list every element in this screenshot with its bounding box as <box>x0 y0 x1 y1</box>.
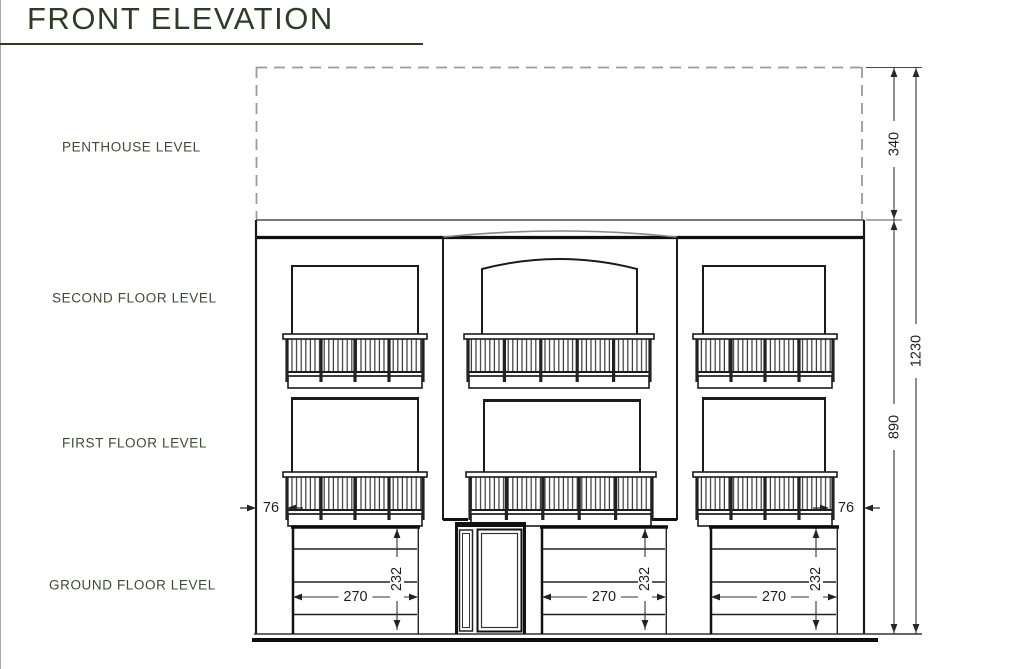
dim-main-height: 890 <box>887 415 903 439</box>
window-second-right <box>703 266 825 345</box>
balcony-railing <box>464 334 654 388</box>
penthouse-dashed-outline <box>256 67 864 219</box>
dim-side-offset-right: 76 <box>838 500 854 516</box>
dim-garage-height-center: 232 <box>637 567 653 591</box>
dim-total-height: 1230 <box>909 335 925 367</box>
window-second-center-arched <box>482 259 637 345</box>
dim-garage-height-right: 232 <box>808 567 824 591</box>
window-second-left <box>292 266 418 345</box>
balcony-railing <box>693 334 837 388</box>
balcony-railing <box>693 472 837 526</box>
dim-garage-height-left: 232 <box>389 567 405 591</box>
first-floor-windows <box>291 398 826 478</box>
window-first-center <box>484 400 640 478</box>
window-first-right <box>703 398 825 478</box>
dim-garage-width-right: 270 <box>762 589 786 605</box>
window-first-left <box>292 398 418 478</box>
dim-garage-width-left: 270 <box>343 589 367 605</box>
dim-penthouse-height: 340 <box>887 132 903 156</box>
elevation-drawing: 340 890 1230 270 270 270 232 232 232 76 … <box>0 0 1024 669</box>
entrance-door <box>455 522 526 634</box>
elevation-sheet: FRONT ELEVATION PENTHOUSE LEVEL SECOND F… <box>0 0 1024 669</box>
garage-doors <box>291 527 839 634</box>
dim-garage-width-center: 270 <box>592 589 616 605</box>
balcony-railing <box>283 334 427 388</box>
second-floor-windows <box>292 259 825 345</box>
dim-side-offset-left: 76 <box>263 500 279 516</box>
balcony-railing <box>283 472 427 526</box>
balcony-railing <box>466 472 656 526</box>
